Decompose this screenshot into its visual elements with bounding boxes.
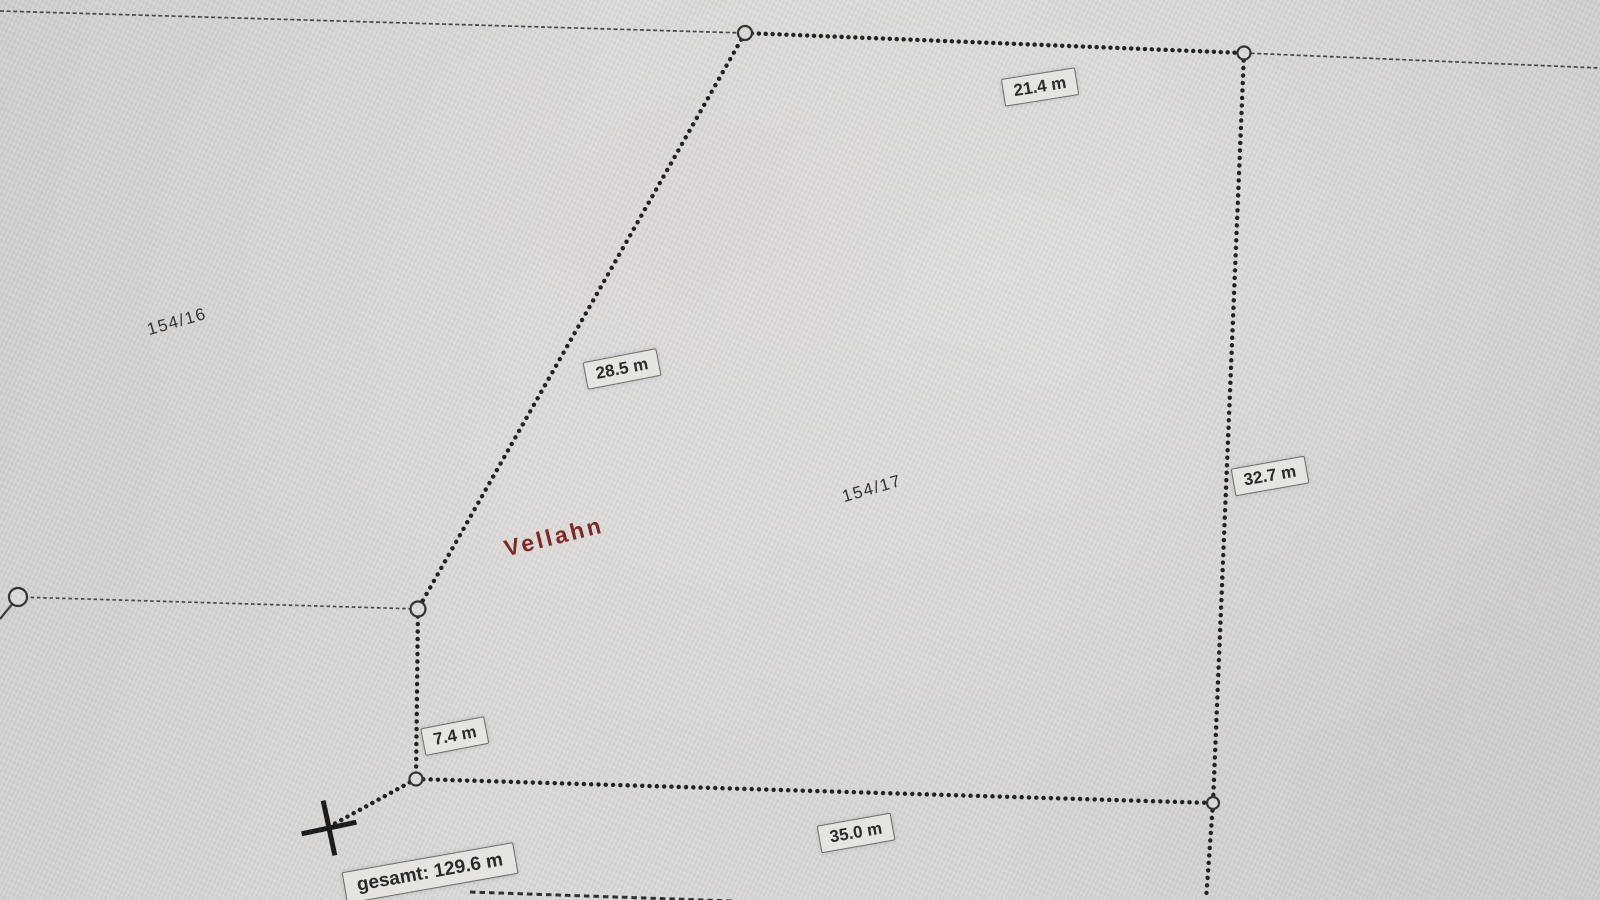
measure-line-32-7m (1213, 53, 1244, 803)
map-canvas[interactable] (0, 0, 1600, 900)
boundary-line-left (18, 597, 418, 609)
measure-line-21-4m (745, 33, 1244, 53)
measure-vertex-top[interactable] (738, 26, 752, 40)
boundary-line-bottom-edge (470, 892, 732, 900)
measure-line-7-4m (416, 609, 418, 779)
measure-line-35-0m (416, 779, 1213, 803)
measure-vertex-bottom-right[interactable] (1207, 797, 1219, 809)
cursor-cross-marker (296, 795, 362, 861)
boundary-line-right-extension (1206, 803, 1213, 900)
boundary-vertex-left-edge[interactable] (9, 588, 27, 606)
map-viewport[interactable]: 21.4 m 28.5 m 32.7 m 7.4 m 35.0 m gesamt… (0, 0, 1600, 900)
measure-line-to-cursor (334, 779, 416, 824)
measure-vertex-top-right[interactable] (1238, 47, 1251, 60)
measure-vertex-bottom-left[interactable] (410, 773, 423, 786)
boundary-line-top-right (1244, 53, 1600, 68)
boundary-line-top-left (0, 11, 745, 33)
measure-vertex-mid-left[interactable] (411, 602, 426, 617)
